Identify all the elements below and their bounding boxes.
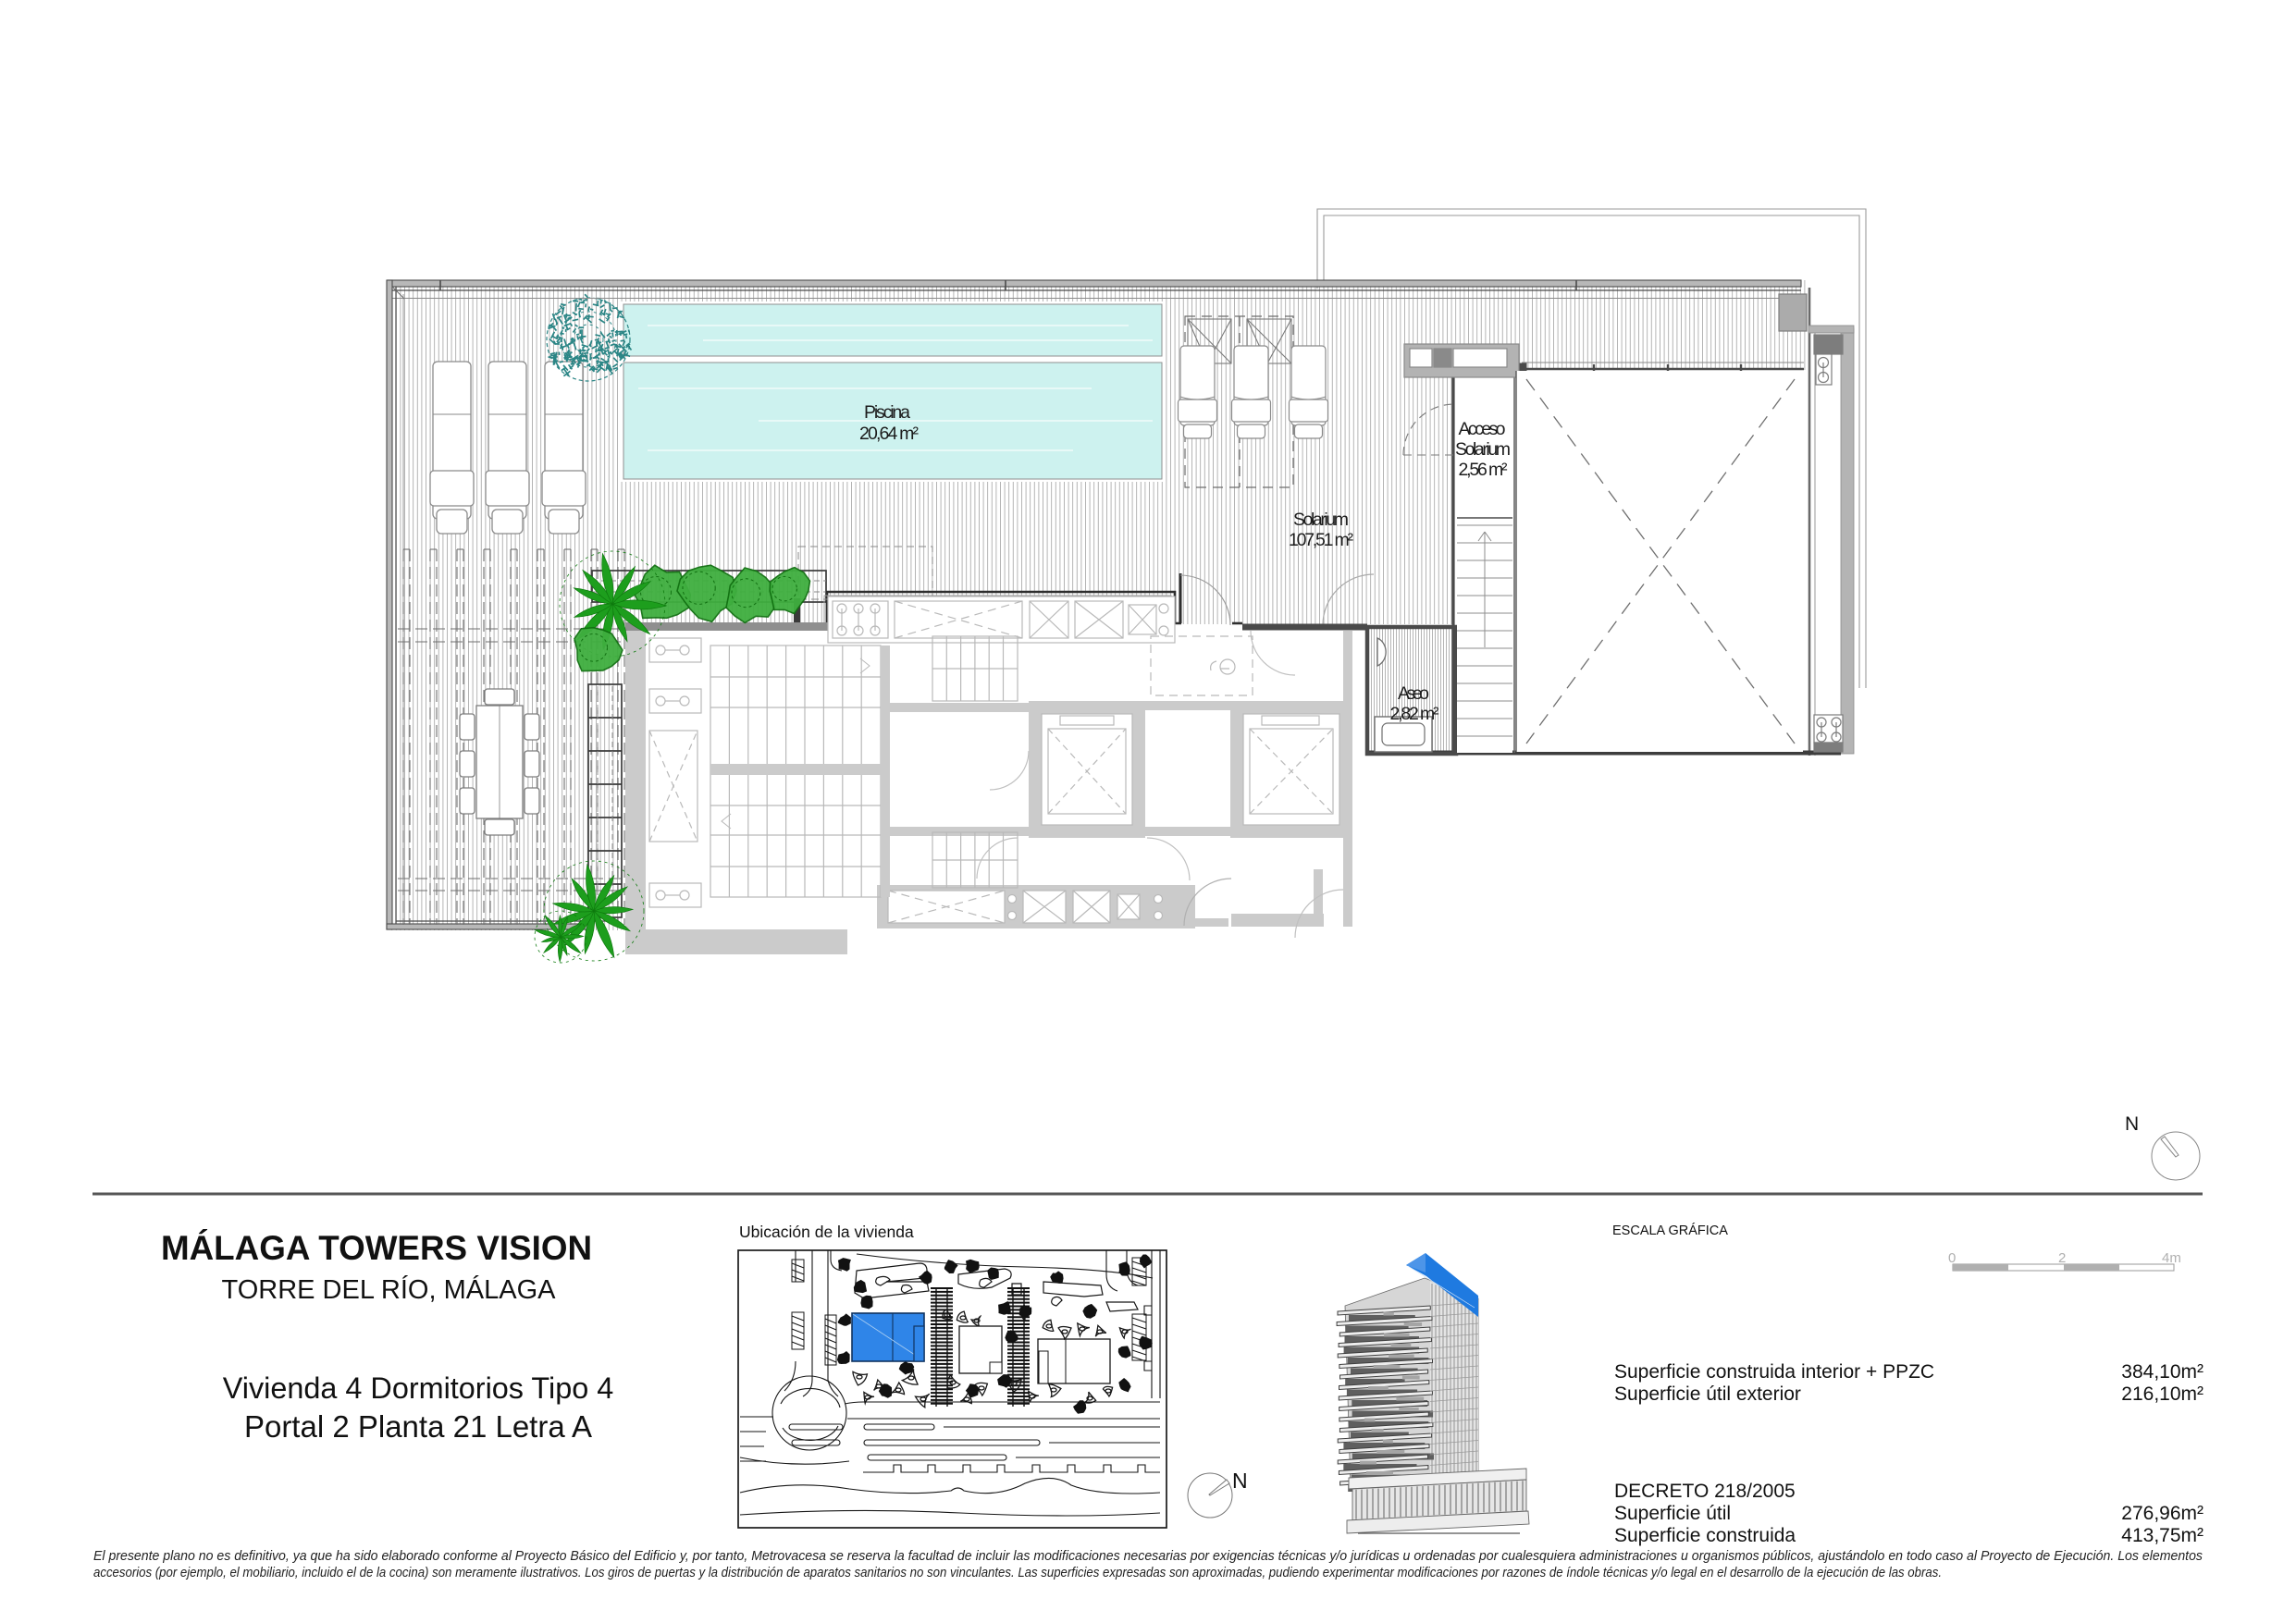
- svg-text:Aseo: Aseo: [1398, 683, 1429, 704]
- svg-text:4m: 4m: [2162, 1250, 2181, 1266]
- svg-text:Portal 2 Planta 21 Letra A: Portal 2 Planta 21 Letra A: [244, 1409, 592, 1444]
- svg-text:2: 2: [2058, 1250, 2066, 1266]
- svg-text:Superficie útil: Superficie útil: [1614, 1503, 1731, 1524]
- svg-text:N: N: [2125, 1113, 2139, 1135]
- svg-text:Vivienda 4 Dormitorios Tipo 4: Vivienda 4 Dormitorios Tipo 4: [223, 1371, 614, 1405]
- svg-text:216,10m²: 216,10m²: [2121, 1383, 2203, 1405]
- svg-text:Acceso: Acceso: [1459, 419, 1506, 439]
- svg-text:413,75m²: 413,75m²: [2121, 1525, 2203, 1546]
- svg-text:276,96m²: 276,96m²: [2121, 1503, 2203, 1524]
- svg-text:Superficie útil exterior: Superficie útil exterior: [1614, 1383, 1801, 1405]
- svg-text:El presente plano no es defini: El presente plano no es definitivo, ya q…: [93, 1548, 2203, 1564]
- svg-text:2,82 m²: 2,82 m²: [1390, 704, 1440, 724]
- svg-text:ESCALA GRÁFICA: ESCALA GRÁFICA: [1612, 1223, 1728, 1238]
- svg-text:accesorios (por ejemplo, el mo: accesorios (por ejemplo, el mobiliario, …: [93, 1565, 1942, 1580]
- svg-text:0: 0: [1948, 1250, 1956, 1266]
- svg-text:Superficie construida: Superficie construida: [1614, 1525, 1796, 1546]
- svg-text:MÁLAGA TOWERS VISION: MÁLAGA TOWERS VISION: [161, 1229, 592, 1267]
- svg-text:TORRE DEL RÍO, MÁLAGA: TORRE DEL RÍO, MÁLAGA: [222, 1274, 557, 1305]
- svg-text:Solarium: Solarium: [1455, 439, 1511, 460]
- svg-text:2,56 m²: 2,56 m²: [1459, 460, 1509, 480]
- svg-text:107,51 m²: 107,51 m²: [1289, 530, 1354, 550]
- svg-text:Piscina: Piscina: [864, 402, 910, 423]
- svg-text:Solarium: Solarium: [1293, 510, 1349, 530]
- svg-text:Ubicación de la vivienda: Ubicación de la vivienda: [739, 1223, 914, 1241]
- svg-text:DECRETO 218/2005: DECRETO 218/2005: [1614, 1481, 1796, 1502]
- svg-text:N: N: [1232, 1469, 1248, 1493]
- svg-text:Superficie construida interior: Superficie construida interior + PPZC: [1614, 1361, 1934, 1383]
- svg-text:384,10m²: 384,10m²: [2121, 1361, 2203, 1383]
- svg-text:20,64 m²: 20,64 m²: [859, 424, 920, 444]
